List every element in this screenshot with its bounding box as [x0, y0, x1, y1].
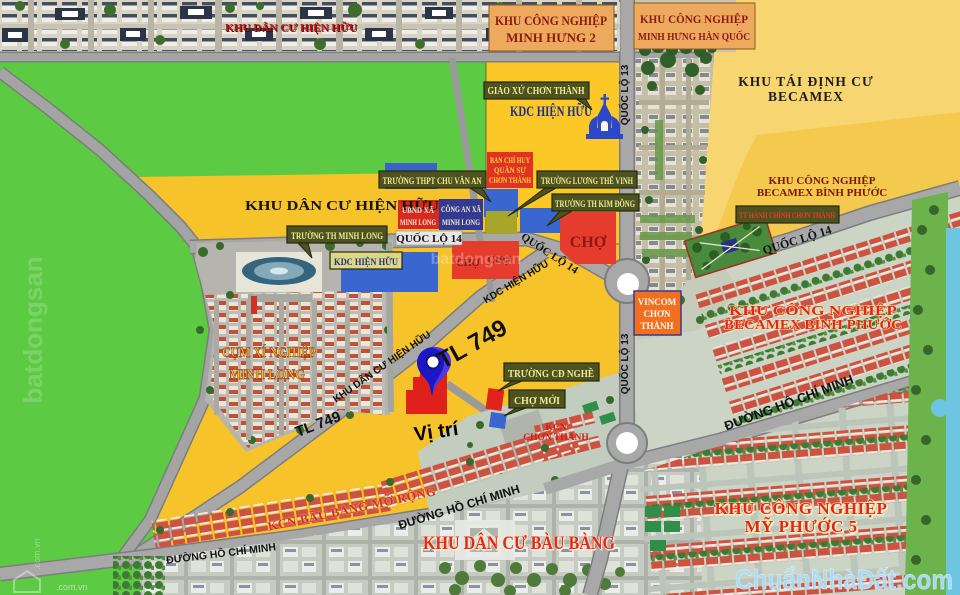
svg-text:batdongsan: batdongsan: [18, 256, 48, 403]
svg-text:BECAMEX: BECAMEX: [768, 89, 844, 104]
svg-text:.com.vn: .com.vn: [56, 582, 88, 592]
svg-text:CHƠN: CHƠN: [644, 309, 672, 319]
svg-text:MINH HƯNG HÀN QUỐC: MINH HƯNG HÀN QUỐC: [638, 30, 750, 43]
svg-text:THÀNH: THÀNH: [640, 321, 673, 331]
svg-text:CỤM XÍ NGHIỆP: CỤM XÍ NGHIỆP: [222, 344, 316, 361]
svg-text:BECAMEX BÌNH PHƯỚC: BECAMEX BÌNH PHƯỚC: [724, 317, 902, 332]
svg-text:BAN CHỈ HUY: BAN CHỈ HUY: [490, 155, 530, 165]
svg-text:CÔNG AN XÃ: CÔNG AN XÃ: [441, 204, 482, 214]
svg-text:KHU DÂN CƯ HIỆN HỮU: KHU DÂN CƯ HIỆN HỮU: [225, 21, 357, 34]
svg-text:KHU CÔNG NGHIỆP: KHU CÔNG NGHIỆP: [715, 499, 888, 518]
svg-text:KHU CÔNG NGHIỆP: KHU CÔNG NGHIỆP: [769, 174, 876, 187]
svg-text:QUÂN SỰ: QUÂN SỰ: [494, 165, 527, 175]
svg-text:TT HÀNH CHÍNH CHƠN THÀNH: TT HÀNH CHÍNH CHƠN THÀNH: [739, 210, 836, 220]
svg-text:KHU CÔNG NGHIỆP: KHU CÔNG NGHIỆP: [495, 13, 607, 28]
svg-text:QUỐC LỘ 13: QUỐC LỘ 13: [617, 64, 631, 125]
svg-text:VINCOM: VINCOM: [638, 297, 677, 307]
svg-text:BECAMEX BÌNH PHƯỚC: BECAMEX BÌNH PHƯỚC: [757, 187, 887, 199]
svg-text:TRƯỜNG LƯƠNG THẾ VINH: TRƯỜNG LƯƠNG THẾ VINH: [541, 176, 633, 186]
svg-text:KHU TÁI ĐỊNH CƯ: KHU TÁI ĐỊNH CƯ: [738, 74, 873, 89]
svg-text:CHƠN THÀNH: CHƠN THÀNH: [523, 431, 589, 443]
svg-text:ChuẩnNhàĐất.com: ChuẩnNhàĐất.com: [735, 564, 953, 595]
svg-text:KDC HIỆN HỮU: KDC HIỆN HỮU: [510, 102, 592, 120]
svg-text:CHỢ: CHỢ: [570, 234, 607, 251]
svg-text:.com.vn: .com.vn: [32, 538, 42, 570]
svg-text:KHU CÔNG NGHIỆP: KHU CÔNG NGHIỆP: [640, 12, 748, 26]
svg-text:TRƯỜNG TH KIM ĐỒNG: TRƯỜNG TH KIM ĐỒNG: [555, 199, 635, 209]
svg-text:TRƯỜNG CĐ NGHỀ: TRƯỜNG CĐ NGHỀ: [508, 367, 594, 380]
svg-text:GIÁO XỨ CHƠN THÀNH: GIÁO XỨ CHƠN THÀNH: [488, 85, 585, 97]
svg-text:KHU DÂN CƯ BÀU BÀNG: KHU DÂN CƯ BÀU BÀNG: [423, 532, 615, 554]
svg-text:TRƯỜNG THPT CHU VĂN AN: TRƯỜNG THPT CHU VĂN AN: [383, 176, 482, 186]
svg-text:KCN: KCN: [545, 423, 566, 433]
svg-text:MINH HƯNG 2: MINH HƯNG 2: [506, 30, 596, 45]
svg-text:MINH LONG: MINH LONG: [442, 217, 480, 227]
svg-text:TRƯỜNG TH MINH LONG: TRƯỜNG TH MINH LONG: [291, 231, 383, 241]
svg-text:QUỐC LỘ 14: QUỐC LỘ 14: [396, 232, 462, 245]
svg-text:KHU CÔNG NGHIỆP: KHU CÔNG NGHIỆP: [729, 303, 897, 318]
svg-text:MINH LONG: MINH LONG: [229, 367, 305, 383]
svg-text:batdongsan: batdongsan: [431, 251, 522, 268]
svg-text:CHỢ MỚI: CHỢ MỚI: [514, 395, 560, 407]
svg-text:MINH LONG: MINH LONG: [400, 217, 436, 227]
svg-text:QUỐC LỘ 13: QUỐC LỘ 13: [617, 333, 631, 394]
svg-text:UBND XÃ: UBND XÃ: [402, 205, 435, 215]
svg-text:MỸ PHƯỚC 5: MỸ PHƯỚC 5: [745, 516, 858, 536]
svg-text:CHƠN THÀNH: CHƠN THÀNH: [489, 175, 532, 185]
